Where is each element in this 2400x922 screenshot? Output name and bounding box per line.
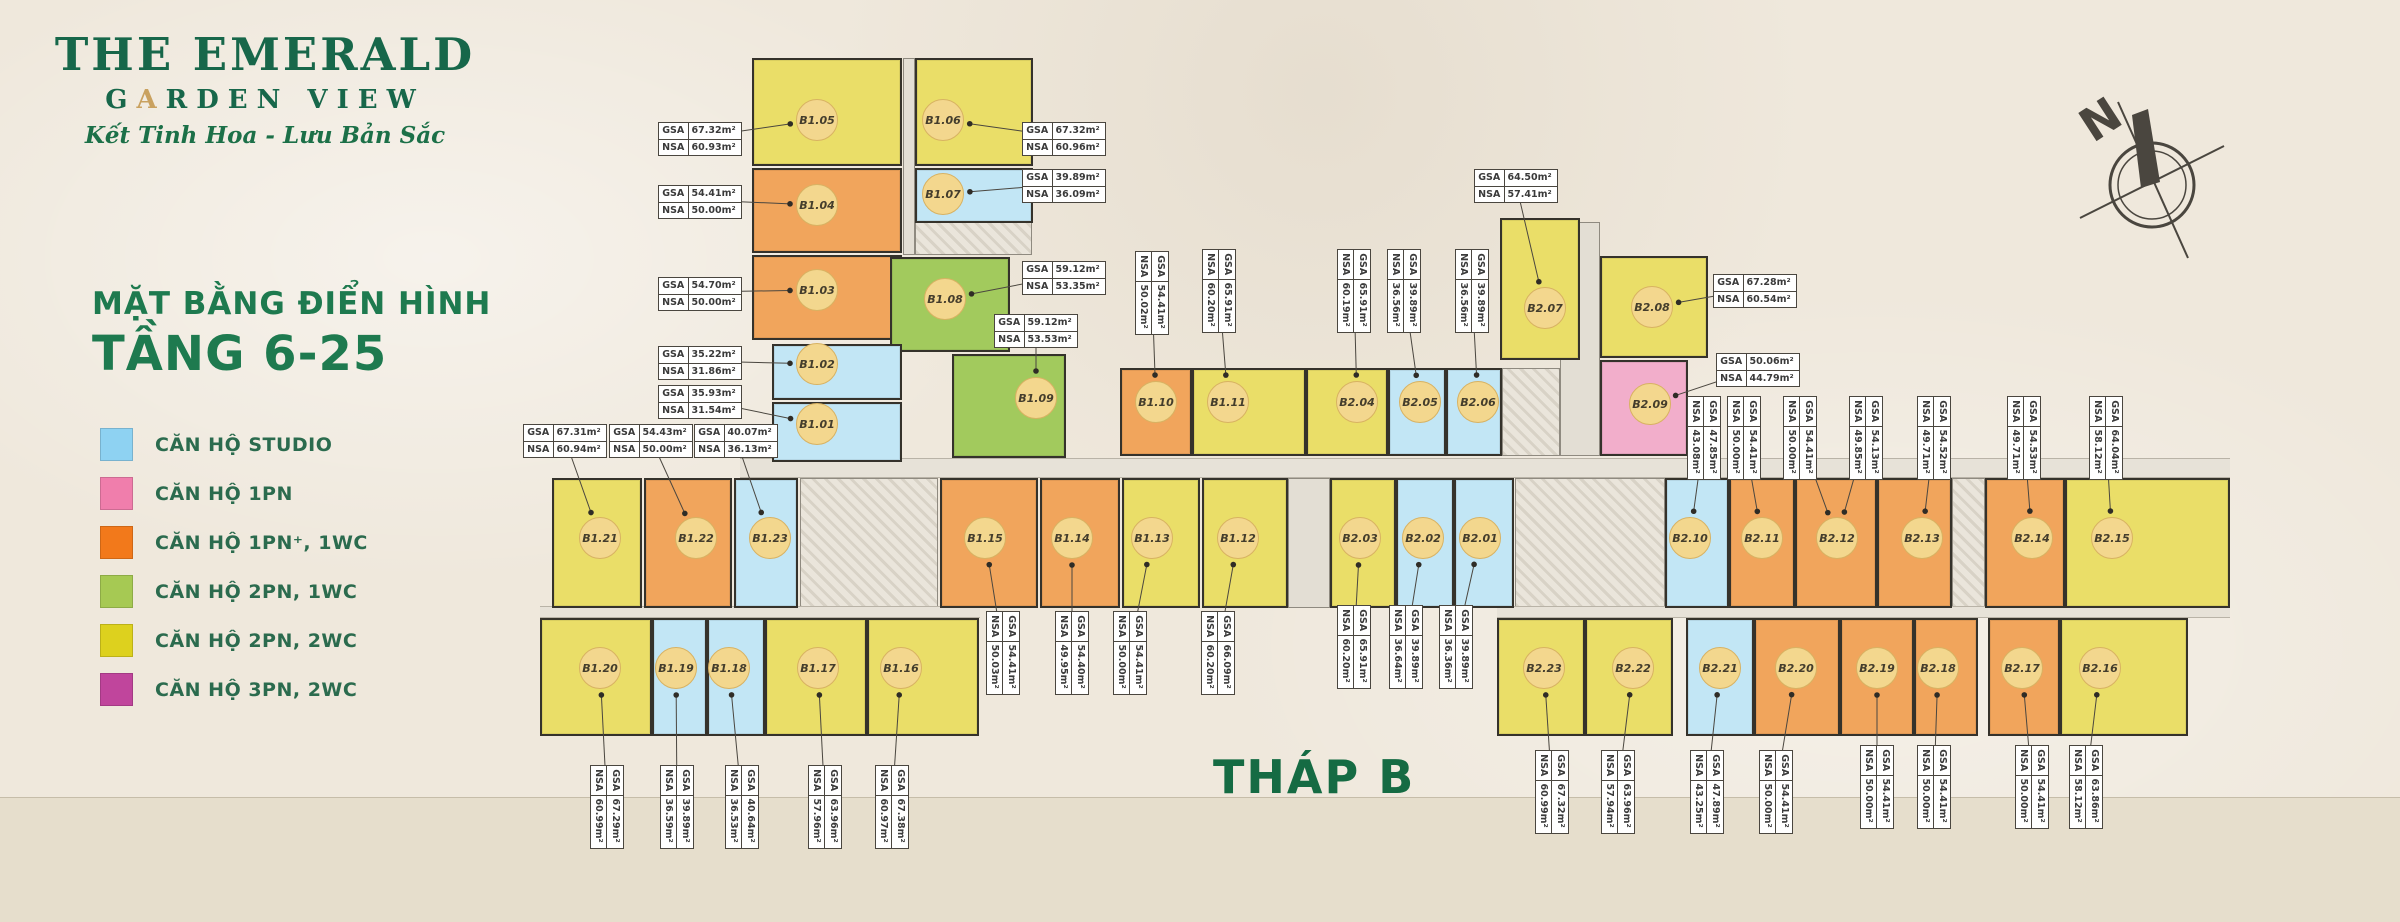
unit-badge-B1.09: B1.09 xyxy=(1015,377,1057,419)
area-table-B1.05: GSA67.32m²NSA60.93m² xyxy=(658,122,742,156)
unit-badge-B2.19: B2.19 xyxy=(1856,647,1898,689)
area-value: 50.00m² xyxy=(1784,427,1800,479)
unit-badge-B2.12: B2.12 xyxy=(1816,517,1858,559)
area-field-label: GSA xyxy=(1072,612,1089,642)
area-value: 50.00m² xyxy=(689,295,741,311)
area-value: 60.99m² xyxy=(591,796,607,848)
area-value: 59.12m² xyxy=(1053,262,1105,279)
area-field-label: NSA xyxy=(1691,751,1707,781)
area-field-label: NSA xyxy=(987,612,1003,642)
area-value: 54.41m² xyxy=(1152,282,1169,334)
area-field-label: GSA xyxy=(677,766,694,796)
unit-badge-B1.13: B1.13 xyxy=(1131,517,1173,559)
area-field-label: NSA xyxy=(1136,252,1152,282)
area-field-label: GSA xyxy=(1744,397,1761,427)
unit-badge-B2.20: B2.20 xyxy=(1775,647,1817,689)
area-value: 54.41m² xyxy=(1003,642,1020,694)
area-value: 58.12m² xyxy=(2090,427,2106,479)
area-table-B2.13: GSA54.52m²NSA49.71m² xyxy=(1917,396,1951,480)
area-value: 49.71m² xyxy=(1918,427,1934,479)
area-table-B2.12: GSA54.41m²NSA50.00m² xyxy=(1783,396,1817,480)
area-table-B2.22: GSA63.96m²NSA57.94m² xyxy=(1601,750,1635,834)
area-value: 63.86m² xyxy=(2086,776,2103,828)
area-field-label: NSA xyxy=(2016,746,2032,776)
area-table-B2.05: GSA39.89m²NSA36.56m² xyxy=(1387,249,1421,333)
area-field-label: NSA xyxy=(1918,746,1934,776)
area-value: 36.53m² xyxy=(726,796,742,848)
area-field-label: GSA xyxy=(1130,612,1147,642)
area-field-label: NSA xyxy=(659,140,689,156)
unit-badge-B1.21: B1.21 xyxy=(579,517,621,559)
area-value: 54.41m² xyxy=(1776,781,1793,833)
area-table-B1.17: GSA63.96m²NSA57.96m² xyxy=(808,765,842,849)
area-value: 58.12m² xyxy=(2070,776,2086,828)
area-table-B1.02: GSA35.22m²NSA31.86m² xyxy=(658,346,742,380)
area-value: 54.41m² xyxy=(1130,642,1147,694)
area-value: 36.64m² xyxy=(1390,636,1406,688)
area-value: 40.64m² xyxy=(742,796,759,848)
area-table-B2.12: GSA54.13m²NSA49.85m² xyxy=(1849,396,1883,480)
area-field-label: GSA xyxy=(1456,606,1473,636)
area-field-label: GSA xyxy=(1023,170,1053,187)
area-value: 50.00m² xyxy=(689,203,741,219)
area-table-B1.20: GSA67.29m²NSA60.99m² xyxy=(590,765,624,849)
compass-n-label: N xyxy=(2072,88,2131,153)
area-value: 67.28m² xyxy=(1744,275,1796,292)
area-field-label: GSA xyxy=(659,123,689,140)
area-field-label: GSA xyxy=(1934,746,1951,776)
area-field-label: NSA xyxy=(1456,250,1472,280)
area-value: 49.71m² xyxy=(2008,427,2024,479)
area-table-B1.19: GSA39.89m²NSA36.59m² xyxy=(660,765,694,849)
area-field-label: NSA xyxy=(1203,250,1219,280)
area-value: 60.19m² xyxy=(1338,280,1354,332)
area-field-label: GSA xyxy=(2106,397,2123,427)
area-field-label: NSA xyxy=(1338,250,1354,280)
area-value: 53.35m² xyxy=(1053,279,1105,295)
area-value: 60.20m² xyxy=(1338,636,1354,688)
area-field-label: GSA xyxy=(695,425,725,442)
area-field-label: NSA xyxy=(1714,292,1744,308)
area-field-label: GSA xyxy=(1707,751,1724,781)
area-value: 60.97m² xyxy=(876,796,892,848)
area-field-label: GSA xyxy=(1354,250,1371,280)
unit-badge-B1.08: B1.08 xyxy=(924,278,966,320)
area-field-label: NSA xyxy=(659,403,689,419)
area-value: 54.53m² xyxy=(2024,427,2041,479)
area-field-label: GSA xyxy=(2032,746,2049,776)
unit-badge-B1.18: B1.18 xyxy=(708,647,750,689)
area-field-label: GSA xyxy=(1704,397,1721,427)
area-field-label: NSA xyxy=(1918,397,1934,427)
area-value: 60.96m² xyxy=(1053,140,1105,156)
area-value: 50.02m² xyxy=(1136,282,1152,334)
area-value: 63.96m² xyxy=(825,796,842,848)
area-value: 54.43m² xyxy=(640,425,692,442)
area-table-B1.01: GSA35.93m²NSA31.54m² xyxy=(658,385,742,419)
unit-badge-B2.11: B2.11 xyxy=(1741,517,1783,559)
area-field-label: GSA xyxy=(1003,612,1020,642)
area-field-label: NSA xyxy=(995,332,1025,348)
area-field-label: GSA xyxy=(1714,275,1744,292)
area-table-B1.10: GSA54.41m²NSA50.02m² xyxy=(1135,251,1169,335)
area-field-label: GSA xyxy=(1717,354,1747,371)
unit-badge-B1.11: B1.11 xyxy=(1207,381,1249,423)
area-field-label: NSA xyxy=(1202,612,1218,642)
unit-badge-B1.02: B1.02 xyxy=(796,343,838,385)
area-field-label: NSA xyxy=(1023,187,1053,203)
area-value: 36.36m² xyxy=(1440,636,1456,688)
area-field-label: GSA xyxy=(607,766,624,796)
area-value: 50.00m² xyxy=(1918,776,1934,828)
area-value: 64.50m² xyxy=(1505,170,1557,187)
area-table-B2.11: GSA54.41m²NSA50.00m² xyxy=(1727,396,1761,480)
area-value: 39.89m² xyxy=(1053,170,1105,187)
area-value: 54.40m² xyxy=(1072,642,1089,694)
area-value: 36.56m² xyxy=(1456,280,1472,332)
area-value: 59.12m² xyxy=(1025,315,1077,332)
area-field-label: GSA xyxy=(659,347,689,364)
area-table-B2.03: GSA65.91m²NSA60.20m² xyxy=(1337,605,1371,689)
area-field-label: GSA xyxy=(892,766,909,796)
area-field-label: GSA xyxy=(1472,250,1489,280)
area-field-label: GSA xyxy=(659,278,689,295)
area-value: 67.32m² xyxy=(1053,123,1105,140)
area-value: 54.52m² xyxy=(1934,427,1951,479)
area-field-label: GSA xyxy=(1475,170,1505,187)
area-field-label: GSA xyxy=(1023,123,1053,140)
area-field-label: NSA xyxy=(1023,279,1053,295)
area-field-label: NSA xyxy=(1760,751,1776,781)
area-table-B2.01: GSA39.89m²NSA36.36m² xyxy=(1439,605,1473,689)
area-value: 54.41m² xyxy=(1877,776,1894,828)
area-value: 67.29m² xyxy=(607,796,624,848)
area-value: 54.41m² xyxy=(689,186,741,203)
area-field-label: GSA xyxy=(1404,250,1421,280)
unit-badge-B2.07: B2.07 xyxy=(1524,287,1566,329)
unit-badge-B2.06: B2.06 xyxy=(1457,381,1499,423)
area-value: 43.25m² xyxy=(1691,781,1707,833)
area-value: 57.94m² xyxy=(1602,781,1618,833)
area-field-label: NSA xyxy=(1717,371,1747,387)
unit-badge-B2.08: B2.08 xyxy=(1631,286,1673,328)
area-field-label: GSA xyxy=(610,425,640,442)
area-value: 35.93m² xyxy=(689,386,741,403)
area-value: 60.54m² xyxy=(1744,292,1796,308)
area-field-label: NSA xyxy=(659,203,689,219)
area-field-label: GSA xyxy=(995,315,1025,332)
area-field-label: NSA xyxy=(1688,397,1704,427)
area-table-B1.09: GSA59.12m²NSA53.53m² xyxy=(994,314,1078,348)
area-table-B2.17: GSA54.41m²NSA50.00m² xyxy=(2015,745,2049,829)
area-field-label: NSA xyxy=(1861,746,1877,776)
unit-badge-B2.01: B2.01 xyxy=(1459,517,1501,559)
unit-badge-B1.20: B1.20 xyxy=(579,647,621,689)
unit-badge-B2.23: B2.23 xyxy=(1523,647,1565,689)
area-table-B2.04: GSA65.91m²NSA60.19m² xyxy=(1337,249,1371,333)
area-value: 60.99m² xyxy=(1536,781,1552,833)
area-value: 57.96m² xyxy=(809,796,825,848)
area-table-B2.14: GSA54.53m²NSA49.71m² xyxy=(2007,396,2041,480)
area-value: 47.85m² xyxy=(1704,427,1721,479)
area-field-label: NSA xyxy=(1602,751,1618,781)
unit-badge-B2.04: B2.04 xyxy=(1336,381,1378,423)
area-table-B1.03: GSA54.70m²NSA50.00m² xyxy=(658,277,742,311)
unit-badge-B2.17: B2.17 xyxy=(2001,647,2043,689)
area-field-label: NSA xyxy=(2070,746,2086,776)
area-field-label: GSA xyxy=(1552,751,1569,781)
area-table-B2.19: GSA54.41m²NSA50.00m² xyxy=(1860,745,1894,829)
unit-badge-B2.09: B2.09 xyxy=(1629,383,1671,425)
area-field-label: GSA xyxy=(1023,262,1053,279)
area-field-label: NSA xyxy=(1784,397,1800,427)
floor-plan: B1.05B1.06B1.04B1.07B1.03B1.08B1.02B1.01… xyxy=(0,0,2400,921)
unit-badge-B2.02: B2.02 xyxy=(1402,517,1444,559)
area-field-label: NSA xyxy=(1390,606,1406,636)
area-table-B1.12: GSA66.09m²NSA60.20m² xyxy=(1201,611,1235,695)
area-table-B1.14: GSA54.40m²NSA49.95m² xyxy=(1055,611,1089,695)
area-value: 60.20m² xyxy=(1203,280,1219,332)
area-field-label: NSA xyxy=(695,442,725,458)
area-field-label: GSA xyxy=(1866,397,1883,427)
area-table-B1.11: GSA65.91m²NSA60.20m² xyxy=(1202,249,1236,333)
area-value: 36.56m² xyxy=(1388,280,1404,332)
unit-badge-B1.04: B1.04 xyxy=(796,184,838,226)
area-value: 64.04m² xyxy=(2106,427,2123,479)
area-field-label: NSA xyxy=(1728,397,1744,427)
area-value: 39.89m² xyxy=(1472,280,1489,332)
area-value: 31.54m² xyxy=(689,403,741,419)
area-value: 39.89m² xyxy=(1456,636,1473,688)
area-field-label: NSA xyxy=(659,295,689,311)
area-table-B1.08: GSA59.12m²NSA53.35m² xyxy=(1022,261,1106,295)
area-value: 50.03m² xyxy=(987,642,1003,694)
area-field-label: GSA xyxy=(1934,397,1951,427)
area-value: 54.70m² xyxy=(689,278,741,295)
area-value: 67.32m² xyxy=(1552,781,1569,833)
area-table-B2.23: GSA67.32m²NSA60.99m² xyxy=(1535,750,1569,834)
unit-badge-B1.19: B1.19 xyxy=(655,647,697,689)
area-value: 67.32m² xyxy=(689,123,741,140)
area-value: 67.38m² xyxy=(892,796,909,848)
area-table-B2.09: GSA50.06m²NSA44.79m² xyxy=(1716,353,1800,387)
unit-badge-B1.14: B1.14 xyxy=(1051,517,1093,559)
area-field-label: GSA xyxy=(1618,751,1635,781)
area-value: 57.41m² xyxy=(1505,187,1557,203)
tower-label: THÁP B xyxy=(1213,750,1415,804)
unit-badge-B1.22: B1.22 xyxy=(675,517,717,559)
area-value: 40.07m² xyxy=(725,425,777,442)
unit-badge-B1.15: B1.15 xyxy=(964,517,1006,559)
area-field-label: GSA xyxy=(524,425,554,442)
area-field-label: GSA xyxy=(1877,746,1894,776)
area-value: 54.41m² xyxy=(2032,776,2049,828)
unit-badge-B1.10: B1.10 xyxy=(1135,381,1177,423)
area-field-label: GSA xyxy=(659,386,689,403)
area-value: 50.00m² xyxy=(640,442,692,458)
area-value: 36.59m² xyxy=(661,796,677,848)
area-value: 50.00m² xyxy=(1114,642,1130,694)
area-value: 39.89m² xyxy=(1404,280,1421,332)
area-value: 66.09m² xyxy=(1218,642,1235,694)
area-table-B2.16: GSA63.86m²NSA58.12m² xyxy=(2069,745,2103,829)
area-field-label: NSA xyxy=(1850,397,1866,427)
area-field-label: GSA xyxy=(1800,397,1817,427)
area-field-label: GSA xyxy=(825,766,842,796)
area-field-label: NSA xyxy=(591,766,607,796)
area-field-label: GSA xyxy=(1218,612,1235,642)
unit-badge-B2.14: B2.14 xyxy=(2011,517,2053,559)
area-value: 53.53m² xyxy=(1025,332,1077,348)
area-table-B1.16: GSA67.38m²NSA60.97m² xyxy=(875,765,909,849)
unit-badge-B2.16: B2.16 xyxy=(2079,647,2121,689)
area-table-B2.06: GSA39.89m²NSA36.56m² xyxy=(1455,249,1489,333)
area-field-label: GSA xyxy=(742,766,759,796)
unit-badge-B1.07: B1.07 xyxy=(922,173,964,215)
area-value: 47.89m² xyxy=(1707,781,1724,833)
area-value: 44.79m² xyxy=(1747,371,1799,387)
unit-badge-B1.17: B1.17 xyxy=(797,647,839,689)
area-field-label: NSA xyxy=(1338,606,1354,636)
area-value: 50.00m² xyxy=(1861,776,1877,828)
area-table-B1.21: GSA67.31m²NSA60.94m² xyxy=(523,424,607,458)
area-field-label: NSA xyxy=(524,442,554,458)
area-value: 31.86m² xyxy=(689,364,741,380)
area-value: 50.00m² xyxy=(2016,776,2032,828)
area-field-label: NSA xyxy=(1475,187,1505,203)
unit-badge-B2.22: B2.22 xyxy=(1612,647,1654,689)
area-field-label: GSA xyxy=(2086,746,2103,776)
area-field-label: NSA xyxy=(1114,612,1130,642)
area-field-label: GSA xyxy=(1219,250,1236,280)
area-table-B1.18: GSA40.64m²NSA36.53m² xyxy=(725,765,759,849)
unit-badge-B1.23: B1.23 xyxy=(749,517,791,559)
area-value: 54.41m² xyxy=(1934,776,1951,828)
area-field-label: NSA xyxy=(726,766,742,796)
area-field-label: NSA xyxy=(610,442,640,458)
area-value: 60.93m² xyxy=(689,140,741,156)
area-value: 43.08m² xyxy=(1688,427,1704,479)
area-value: 50.06m² xyxy=(1747,354,1799,371)
area-field-label: NSA xyxy=(1440,606,1456,636)
area-value: 36.09m² xyxy=(1053,187,1105,203)
area-table-B1.07: GSA39.89m²NSA36.09m² xyxy=(1022,169,1106,203)
area-table-B1.22: GSA54.43m²NSA50.00m² xyxy=(609,424,693,458)
area-value: 60.94m² xyxy=(554,442,606,458)
area-table-B2.08: GSA67.28m²NSA60.54m² xyxy=(1713,274,1797,308)
unit-badge-B1.12: B1.12 xyxy=(1217,517,1259,559)
compass-icon: N xyxy=(2072,88,2232,267)
unit-badge-B1.05: B1.05 xyxy=(796,99,838,141)
area-table-B1.15: GSA54.41m²NSA50.03m² xyxy=(986,611,1020,695)
area-table-B2.21: GSA47.89m²NSA43.25m² xyxy=(1690,750,1724,834)
area-field-label: GSA xyxy=(1152,252,1169,282)
area-value: 35.22m² xyxy=(689,347,741,364)
area-field-label: NSA xyxy=(659,364,689,380)
area-table-B1.23: GSA40.07m²NSA36.13m² xyxy=(694,424,778,458)
area-value: 39.89m² xyxy=(1406,636,1423,688)
unit-badge-B2.13: B2.13 xyxy=(1901,517,1943,559)
area-value: 65.91m² xyxy=(1354,280,1371,332)
area-value: 65.91m² xyxy=(1354,636,1371,688)
unit-badge-B2.15: B2.15 xyxy=(2091,517,2133,559)
area-field-label: GSA xyxy=(1776,751,1793,781)
area-value: 50.00m² xyxy=(1760,781,1776,833)
area-field-label: NSA xyxy=(2008,397,2024,427)
area-value: 36.13m² xyxy=(725,442,777,458)
area-field-label: NSA xyxy=(661,766,677,796)
area-table-B1.06: GSA67.32m²NSA60.96m² xyxy=(1022,122,1106,156)
area-value: 54.13m² xyxy=(1866,427,1883,479)
area-value: 65.91m² xyxy=(1219,280,1236,332)
area-table-B2.20: GSA54.41m²NSA50.00m² xyxy=(1759,750,1793,834)
area-field-label: NSA xyxy=(1536,751,1552,781)
area-table-B2.02: GSA39.89m²NSA36.64m² xyxy=(1389,605,1423,689)
area-table-B1.13: GSA54.41m²NSA50.00m² xyxy=(1113,611,1147,695)
area-table-B2.10: GSA47.85m²NSA43.08m² xyxy=(1687,396,1721,480)
area-value: 54.41m² xyxy=(1800,427,1817,479)
area-field-label: NSA xyxy=(1388,250,1404,280)
area-field-label: GSA xyxy=(2024,397,2041,427)
area-value: 54.41m² xyxy=(1744,427,1761,479)
area-field-label: NSA xyxy=(2090,397,2106,427)
area-table-B2.15: GSA64.04m²NSA58.12m² xyxy=(2089,396,2123,480)
unit-badge-B2.10: B2.10 xyxy=(1669,517,1711,559)
area-value: 63.96m² xyxy=(1618,781,1635,833)
unit-badge-B1.03: B1.03 xyxy=(796,269,838,311)
unit-badge-B2.21: B2.21 xyxy=(1699,647,1741,689)
area-value: 67.31m² xyxy=(554,425,606,442)
unit-badge-B1.06: B1.06 xyxy=(922,99,964,141)
unit-badge-B1.16: B1.16 xyxy=(880,647,922,689)
area-value: 60.20m² xyxy=(1202,642,1218,694)
area-table-B2.07: GSA64.50m²NSA57.41m² xyxy=(1474,169,1558,203)
area-value: 50.00m² xyxy=(1728,427,1744,479)
area-value: 49.95m² xyxy=(1056,642,1072,694)
area-table-B1.04: GSA54.41m²NSA50.00m² xyxy=(658,185,742,219)
unit-badge-B2.03: B2.03 xyxy=(1339,517,1381,559)
area-table-B2.18: GSA54.41m²NSA50.00m² xyxy=(1917,745,1951,829)
area-value: 49.85m² xyxy=(1850,427,1866,479)
unit-badge-B2.05: B2.05 xyxy=(1399,381,1441,423)
area-field-label: NSA xyxy=(1023,140,1053,156)
area-field-label: NSA xyxy=(876,766,892,796)
area-field-label: NSA xyxy=(1056,612,1072,642)
area-field-label: NSA xyxy=(809,766,825,796)
area-field-label: GSA xyxy=(1354,606,1371,636)
unit-badge-B2.18: B2.18 xyxy=(1917,647,1959,689)
unit-badge-B1.01: B1.01 xyxy=(796,403,838,445)
area-field-label: GSA xyxy=(659,186,689,203)
area-field-label: GSA xyxy=(1406,606,1423,636)
area-value: 39.89m² xyxy=(677,796,694,848)
